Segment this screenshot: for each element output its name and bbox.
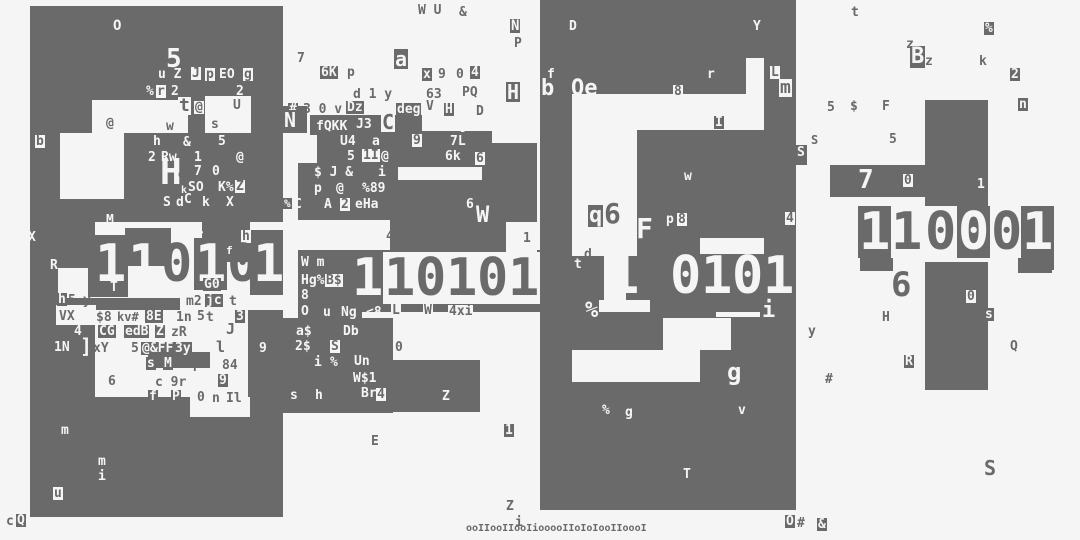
glyph: a [372, 135, 380, 148]
glyph: H [506, 82, 520, 102]
glyph: 3 [235, 310, 245, 323]
glyph: e [178, 168, 185, 180]
glyph: R [904, 355, 914, 368]
glyph: f [148, 390, 158, 403]
glyph: F [882, 100, 890, 113]
glyph: d [584, 248, 592, 261]
glyph: S [796, 146, 806, 159]
glyph: 1 [504, 424, 514, 437]
glyph: 0 [196, 391, 206, 404]
glyph: P [514, 37, 522, 50]
glyph: O [113, 19, 121, 33]
glitch-canvas: W U&NPtZiooIIooIIooIiooooIIoIoIooIIoooIO… [0, 0, 1080, 540]
glyph: % [146, 85, 154, 98]
glyph: fQKK [316, 120, 347, 133]
glyph: m [98, 455, 106, 468]
glyph: Un [354, 355, 370, 368]
glyph: T [110, 281, 118, 294]
glyph: PQ [462, 86, 478, 99]
glyph: 0 [476, 252, 509, 304]
glyph: 2 [236, 85, 244, 98]
glyph: 9 [412, 134, 422, 147]
glyph: J3 [356, 118, 372, 131]
glyph: 6K [320, 66, 338, 79]
glyph: r [156, 85, 166, 98]
glyph: S [811, 134, 818, 146]
glyph: 7L [450, 135, 466, 148]
glyph: 5 [196, 310, 206, 323]
glyph: Q [1010, 340, 1018, 353]
glyph: kv# [117, 311, 139, 323]
glyph: X [226, 196, 234, 209]
glyph: @&FF [141, 342, 174, 355]
glyph: S [984, 458, 996, 478]
glyph: 1 [1021, 206, 1054, 258]
glyph: eHa [355, 198, 378, 211]
glyph: 1I [362, 149, 380, 162]
glyph: B$ [325, 274, 343, 287]
glyph: 9 [258, 342, 268, 355]
glyph: O [785, 515, 795, 528]
glyph: 7N3 [393, 325, 416, 338]
glyph: & [817, 518, 827, 531]
glyph: i [761, 300, 776, 322]
glyph: Hg% [301, 274, 324, 287]
glyph: U4 [340, 135, 356, 148]
glyph: ] [80, 336, 92, 356]
glyph: M [163, 357, 173, 370]
glyph: 0 [990, 206, 1023, 258]
glyph: y [83, 294, 91, 307]
glyph: k [979, 55, 987, 68]
glyph: 3 [156, 119, 164, 132]
glyph: 1 [701, 250, 732, 302]
glyph: 2$ [295, 340, 311, 353]
glyph: 1 [639, 250, 670, 302]
glyph: 6k [445, 150, 461, 163]
glyph: 1 [523, 232, 531, 245]
glyph: # [797, 517, 805, 530]
glyph: g [243, 68, 253, 81]
glyph: 1 [858, 206, 891, 258]
glyph: 4 y [386, 230, 409, 243]
glyph: @ [106, 117, 114, 130]
glyph: L [770, 66, 780, 79]
glyph: Y [753, 20, 761, 33]
glyph: 1 [128, 238, 159, 290]
glyph: H [444, 103, 454, 116]
glyph: & [459, 6, 467, 19]
glyph: j [460, 119, 468, 132]
glyph: $c [220, 118, 236, 131]
glyph: X [475, 325, 483, 338]
glyph: D [476, 105, 484, 118]
glyph: h [153, 135, 161, 148]
glyph: 7 [858, 167, 874, 193]
glyph: 4 [785, 212, 795, 225]
glyph: 8 [677, 213, 687, 226]
glyph: m2 [186, 295, 202, 308]
glyph: % [984, 22, 994, 35]
glyph: D [569, 20, 577, 33]
glyph: 7 [297, 52, 305, 65]
glyph: 4 [376, 388, 386, 401]
glyph: c 9r [155, 376, 186, 389]
glyph: 4 [470, 66, 480, 79]
glyph: 1 [383, 252, 416, 304]
glyph: z [925, 55, 933, 68]
glyph: G0 [203, 278, 221, 291]
glyph: 8 [301, 289, 309, 302]
glyph: t [178, 97, 191, 115]
glyph: t [574, 258, 582, 271]
glyph: 2 [1010, 68, 1020, 81]
glyph: d [176, 196, 184, 209]
glyph: x [422, 68, 432, 81]
glyph: 8 [673, 85, 683, 98]
glyph: zR [171, 326, 187, 339]
glyph: 5 [888, 133, 898, 146]
glyph: 5 [218, 135, 226, 148]
glyph: X [28, 231, 36, 244]
glyph: & [183, 136, 191, 149]
glyph: B [910, 46, 925, 68]
glyph: % [602, 404, 610, 417]
glyph: edB [124, 325, 149, 338]
glyph: 1n [176, 311, 192, 324]
glyph: $8 [96, 311, 112, 324]
glyph: l [216, 340, 225, 355]
glyph: 84 [222, 359, 238, 372]
glyph: m [60, 424, 70, 437]
glyph: $ J & [314, 166, 353, 179]
glyph: @ [380, 150, 390, 163]
glyph: 0 [414, 252, 447, 304]
cutout [663, 318, 731, 350]
glyph: W U [418, 4, 441, 17]
glyph: 3y [174, 342, 192, 355]
glyph: W [476, 205, 489, 227]
glyph: y [808, 325, 816, 338]
glyph: 8E [145, 310, 163, 323]
glyph: u Z [158, 68, 181, 81]
glyph: 6 [466, 198, 474, 211]
glyph: 0 [476, 120, 484, 133]
glyph: b [541, 78, 554, 100]
glyph: K% [218, 181, 234, 194]
glyph: 1 [194, 151, 202, 164]
glyph: b [35, 135, 45, 148]
glyph: R6 [435, 325, 451, 338]
glyph: % [330, 356, 338, 369]
glyph: m [779, 79, 792, 97]
glyph: T [683, 468, 691, 481]
glyph: Dz [346, 101, 364, 114]
glyph: $ [850, 100, 858, 113]
glyph: A [324, 198, 332, 211]
glyph: 5 [347, 150, 355, 163]
glyph: s [210, 118, 220, 131]
glyph: s [146, 357, 156, 370]
glyph: E [371, 435, 379, 448]
glyph: N [510, 19, 520, 33]
glyph: J [191, 67, 201, 80]
glyph: T [459, 342, 467, 355]
glyph: u [53, 487, 63, 500]
glyph: p [314, 182, 322, 195]
glyph: EO [219, 68, 235, 81]
glyph: v [738, 404, 746, 417]
glyph: U [232, 99, 242, 112]
glyph: 1 [253, 238, 284, 290]
glyph: F [636, 215, 653, 243]
glyph: i [314, 356, 322, 369]
glyph: xY [93, 342, 109, 355]
glyph: 0 [732, 250, 763, 302]
glyph: Br [360, 387, 378, 400]
glyph: P [171, 390, 181, 403]
glyph: S [330, 340, 340, 353]
glyph: 0 [903, 174, 913, 187]
glyph: w [684, 170, 692, 183]
glyph: ooIIooIIooIiooooIIoIoIooIIoooI [466, 524, 647, 534]
patch [925, 262, 988, 390]
glyph: 6 [604, 200, 621, 228]
glyph: k [202, 196, 210, 209]
glyph: # [825, 373, 833, 386]
glyph: n [1018, 98, 1028, 111]
glyph: 1 [608, 250, 639, 302]
glyph: p [666, 213, 674, 226]
cutout [648, 352, 692, 382]
glyph: p [205, 68, 215, 81]
glyph: Z [235, 180, 245, 193]
glyph: a$ [295, 325, 313, 338]
glyph: % [212, 101, 219, 113]
glyph: 1 [891, 206, 922, 258]
glyph: 0 [670, 250, 701, 302]
glyph: c [6, 515, 14, 528]
glyph: N [283, 110, 297, 130]
glyph: 1 [763, 250, 794, 302]
glyph: deg [396, 103, 421, 116]
glyph: h [57, 293, 67, 306]
glyph: CG [98, 325, 116, 338]
cutout [746, 58, 764, 94]
glyph: @ [194, 101, 204, 114]
glyph: u [323, 306, 331, 319]
glyph: p [347, 66, 355, 79]
cutout [572, 94, 637, 256]
glyph: t [206, 311, 214, 324]
glyph: Lq [181, 358, 197, 371]
glyph: W m [301, 256, 324, 269]
glyph: W$1 [353, 372, 376, 385]
glyph: % [283, 198, 292, 209]
glyph: 9 [438, 68, 446, 81]
glyph: 5 [827, 101, 835, 114]
glyph: 1 [330, 389, 338, 402]
glyph: g [625, 406, 633, 419]
glyph: r [707, 68, 715, 81]
glyph: & [434, 341, 442, 354]
glyph: V # [148, 101, 171, 114]
glyph: 7 [193, 165, 203, 178]
glyph: 2 [340, 198, 350, 211]
glyph: 3 0 v [303, 103, 342, 116]
glyph: 5 [131, 342, 139, 355]
glyph: 6 [891, 268, 911, 302]
glyph: 1N [54, 341, 70, 354]
glyph: 0 [211, 165, 221, 178]
glyph: Z [442, 390, 450, 403]
glyph: t [229, 295, 237, 308]
glyph: 0 [957, 206, 990, 258]
glyph: I [714, 116, 724, 129]
glyph: 6 [108, 375, 116, 388]
glyph: S [163, 196, 171, 209]
glyph: Db [343, 325, 359, 338]
cutout [716, 312, 760, 317]
glyph: n [212, 392, 220, 405]
glyph: w [165, 120, 175, 133]
glyph: 1 [445, 252, 478, 304]
glyph: 1 [352, 252, 383, 304]
glyph: g [726, 360, 742, 384]
glyph: Qe [571, 78, 598, 100]
glyph: a [394, 49, 408, 69]
glyph: Z [155, 325, 165, 338]
glyph: VX [59, 310, 75, 323]
glyph: Il [226, 392, 242, 405]
glyph: H [882, 311, 890, 324]
glyph: s [984, 308, 994, 321]
glyph: C [381, 112, 395, 132]
glyph: 6 [475, 152, 485, 165]
glyph: 2 [148, 151, 156, 164]
glyph: i [378, 166, 386, 179]
glyph: R [50, 259, 58, 272]
glyph: C [294, 198, 302, 211]
glyph: q [588, 205, 603, 227]
glyph: C [184, 193, 192, 206]
glyph: @ [336, 182, 344, 195]
glyph: 0 [966, 290, 976, 303]
glyph: M [106, 214, 114, 227]
glyph: %89 [362, 182, 385, 195]
glyph: 0 [394, 341, 404, 354]
glyph: @ [236, 151, 244, 164]
glyph: V [426, 100, 434, 113]
glyph: i [98, 470, 106, 483]
glyph: 5 [68, 294, 76, 307]
cutout [60, 133, 124, 199]
glyph: Q [16, 514, 26, 527]
glyph: % [584, 300, 599, 322]
glyph: 1 [507, 252, 540, 304]
glyph: 1 [977, 178, 985, 191]
glyph: h [314, 389, 324, 402]
glyph: 9 [218, 374, 228, 387]
glyph: 0 [456, 68, 464, 81]
glyph: J [226, 322, 235, 337]
glyph: 0 [161, 238, 192, 290]
glyph: s [289, 389, 299, 402]
glyph: O [301, 305, 309, 318]
glyph: jc [205, 294, 223, 307]
glyph: 0 [924, 206, 957, 258]
glyph: 5 [222, 100, 230, 113]
glyph: Z [506, 500, 514, 513]
glyph: t [851, 6, 859, 19]
